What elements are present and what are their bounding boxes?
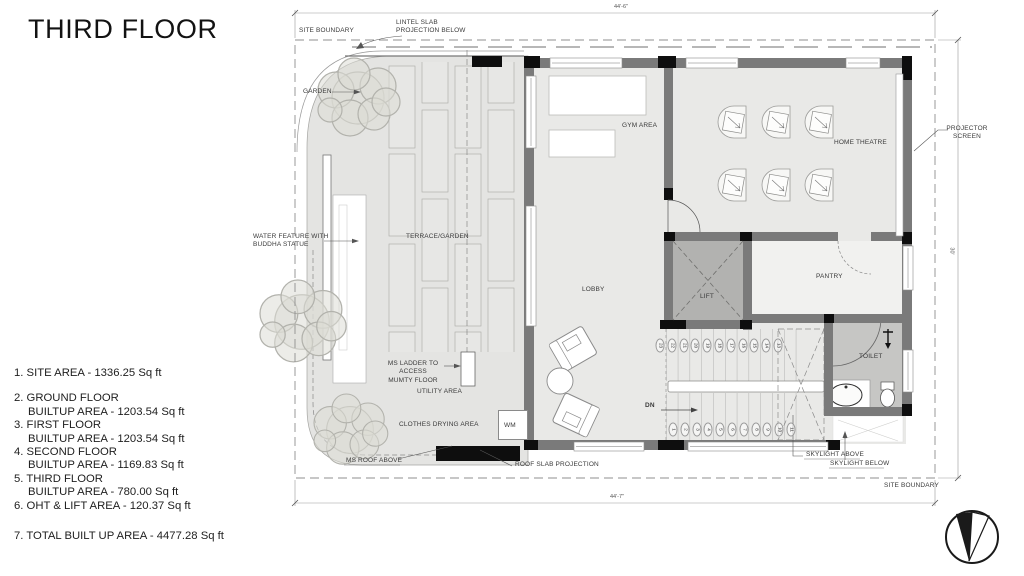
staircase	[661, 329, 824, 440]
area-item: 4. SECOND FLOORBUILTUP AREA - 1169.83 Sq…	[14, 446, 304, 473]
ms-ladder-mark	[461, 352, 475, 386]
area-summary-list: 1. SITE AREA - 1336.25 Sq ft2. GROUND FL…	[14, 367, 304, 513]
pantry-floor	[752, 241, 902, 314]
area-item: 1. SITE AREA - 1336.25 Sq ft	[14, 367, 304, 380]
coffee-table	[547, 368, 573, 394]
washing-machine	[498, 410, 528, 440]
roof-slab-projection-mark	[436, 446, 520, 461]
area-item: 2. GROUND FLOORBUILTUP AREA - 1203.54 Sq…	[14, 392, 304, 419]
wc	[881, 382, 895, 407]
area-item: 3. FIRST FLOORBUILTUP AREA - 1203.54 Sq …	[14, 419, 304, 446]
projector-screen-strip	[896, 74, 903, 236]
area-item: 6. OHT & LIFT AREA - 120.37 Sq ft	[14, 500, 304, 513]
page-title: THIRD FLOOR	[28, 14, 218, 45]
floor-plan-page: { "title": "THIRD FLOOR", "area_summary"…	[0, 0, 1024, 576]
paver-grid	[385, 62, 518, 352]
area-item: 5. THIRD FLOORBUILTUP AREA - 780.00 Sq f…	[14, 473, 304, 500]
area-summary: 1. SITE AREA - 1336.25 Sq ft2. GROUND FL…	[14, 367, 304, 543]
total-builtup-area: 7. TOTAL BUILT UP AREA - 4477.28 Sq ft	[14, 530, 304, 543]
studio-logo	[946, 511, 998, 563]
